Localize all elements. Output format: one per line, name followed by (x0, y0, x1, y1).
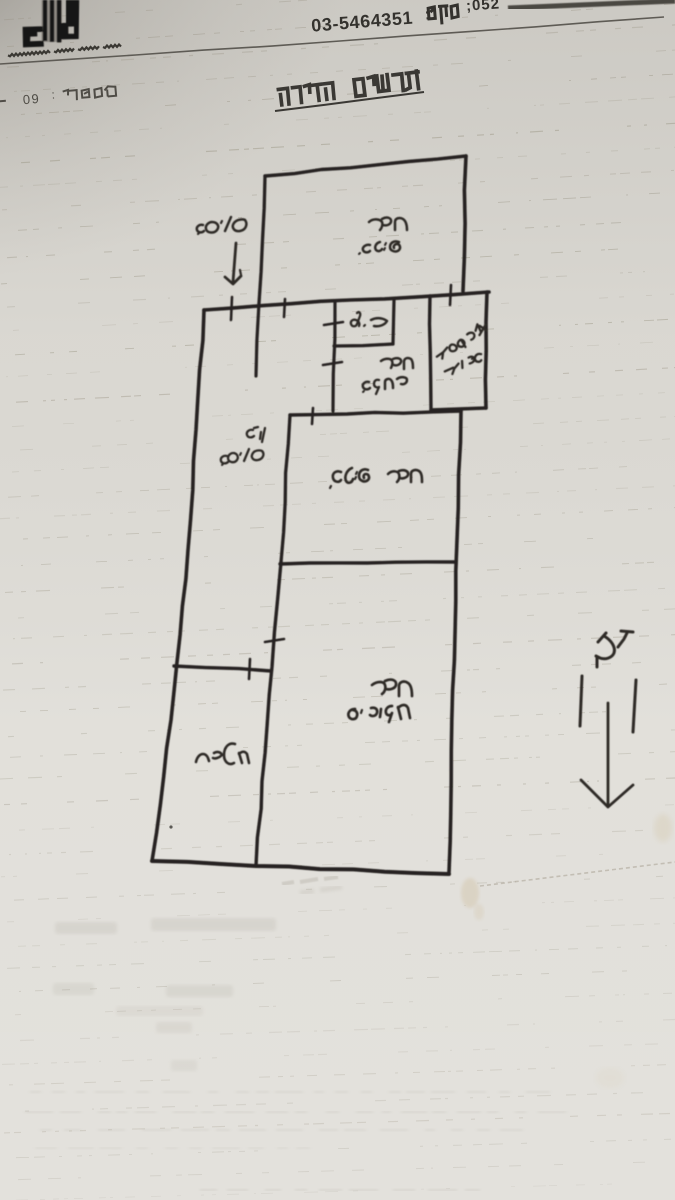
svg-text:;052: ;052 (465, 0, 500, 15)
svg-text:09: 09 (22, 91, 41, 107)
